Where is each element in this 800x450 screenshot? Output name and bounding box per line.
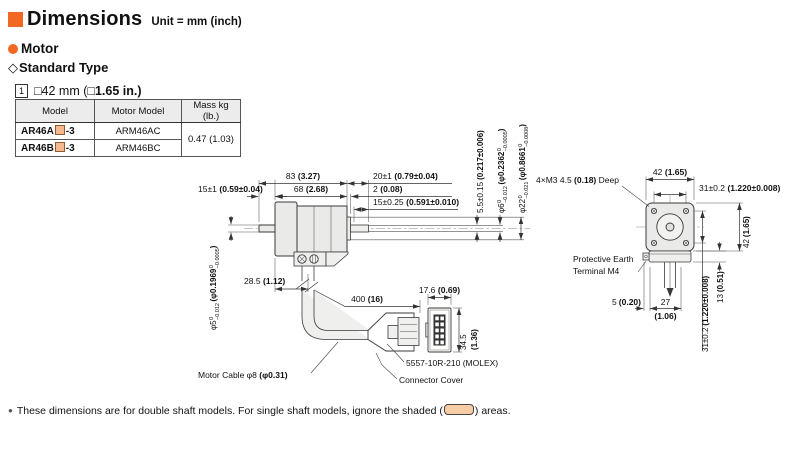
dim-connector-height-mm: 34.5 bbox=[459, 334, 468, 350]
diamond-icon: ◇ bbox=[8, 60, 18, 75]
connector-model-label: 5557-10R-210 (MOLEX) bbox=[406, 358, 498, 368]
motor-model-cell: ARM46AC bbox=[95, 123, 182, 140]
frame-size-heading: 1 □42 mm (□1.65 in.) bbox=[15, 84, 142, 98]
motor-side-view-drawing: 15±1(0.59±0.04) 83(3.27) 68(2.68) 20±1(0… bbox=[185, 88, 550, 398]
dim-pilot-length: 2(0.08) bbox=[373, 184, 403, 194]
cable-front-view bbox=[665, 262, 676, 297]
dim-hole-pitch-side: 31±0.2(1.220±0.008) bbox=[701, 275, 710, 352]
footnote-bullet-icon: ● bbox=[8, 406, 13, 415]
dim-hole-pitch-top: 31±0.2(1.220±0.008) bbox=[699, 183, 780, 193]
screw-icon bbox=[310, 255, 318, 263]
dim-front-shaft-dia: φ50−0.012(φ0.19690−0.0005) bbox=[209, 245, 221, 330]
dim-housing-height: 13(0.51) bbox=[716, 271, 725, 303]
motor-body bbox=[297, 206, 347, 252]
cable-grip bbox=[388, 326, 398, 339]
section-square-icon bbox=[8, 12, 23, 27]
motor-flange bbox=[275, 202, 297, 256]
model-variant-box bbox=[55, 125, 65, 135]
bullet-icon bbox=[8, 44, 18, 54]
tap-label: 4×M3 4.5 (0.18) Deep bbox=[536, 175, 619, 185]
dim-face-width: 42(1.65) bbox=[653, 167, 687, 177]
bracket-angle bbox=[326, 252, 348, 266]
cable-break-mark bbox=[296, 279, 309, 289]
col-header-model: Model bbox=[16, 100, 95, 123]
motor-front-view-drawing: 4×M3 4.5 (0.18) Deep 42(1.65) 31±0.2(1.2… bbox=[535, 145, 800, 390]
dim-connector-width: 17.6(0.69) bbox=[419, 285, 460, 295]
dim-cable-pitch-mm: 27 bbox=[661, 297, 671, 307]
front-shaft-shaded bbox=[259, 225, 275, 232]
dim-body-length: 68(2.68) bbox=[294, 184, 328, 194]
footnote: ●These dimensions are for double shaft m… bbox=[8, 404, 511, 417]
footnote-text-post: ) areas. bbox=[475, 405, 511, 417]
footnote-text-pre: These dimensions are for double shaft mo… bbox=[17, 405, 443, 417]
earth-terminal bbox=[643, 253, 649, 260]
standard-type-heading: ◇Standard Type bbox=[8, 60, 108, 76]
frame-size-label: □42 mm (□1.65 in.) bbox=[34, 84, 142, 98]
shaded-area-swatch bbox=[444, 404, 474, 415]
motor-section-label: Motor bbox=[21, 41, 59, 56]
connector-front-view bbox=[426, 308, 451, 352]
dim-face-height: 42(1.65) bbox=[742, 216, 751, 248]
dim-cable-offset: 28.5(1.12) bbox=[244, 276, 285, 286]
earth-terminal-label-line2: Terminal M4 bbox=[573, 266, 620, 276]
dim-total-length: 83(3.27) bbox=[286, 171, 320, 181]
dim-cable-pitch-inch: (1.06) bbox=[654, 311, 676, 321]
dim-pilot-height: 5.5±0.15(0.217±0.006) bbox=[476, 130, 485, 213]
connector-latch bbox=[426, 323, 428, 337]
model-cell: AR46A-3 bbox=[16, 123, 95, 140]
model-variant-box bbox=[55, 142, 65, 152]
motor-section-heading: Motor bbox=[8, 41, 59, 56]
mounting-hole-icon bbox=[651, 240, 656, 245]
connector-cover-label: Connector Cover bbox=[399, 375, 463, 385]
frame-ref-box: 1 bbox=[15, 84, 28, 98]
mounting-hole-icon bbox=[683, 208, 688, 213]
rear-pilot bbox=[347, 217, 351, 240]
mounting-hole-icon bbox=[683, 240, 688, 245]
connector-block bbox=[398, 318, 419, 346]
unit-note: Unit = mm (inch) bbox=[151, 16, 241, 28]
col-header-motor-model: Motor Model bbox=[95, 100, 182, 123]
model-cell: AR46B-3 bbox=[16, 140, 95, 157]
rear-shaft bbox=[351, 225, 369, 232]
motor-cable-label: Motor Cable φ8 (φ0.31) bbox=[198, 370, 288, 380]
motor-model-cell: ARM46BC bbox=[95, 140, 182, 157]
dimensions-page: Dimensions Unit = mm (inch) Motor ◇Stand… bbox=[0, 0, 800, 450]
page-header: Dimensions Unit = mm (inch) bbox=[8, 8, 242, 31]
bottom-housing bbox=[649, 251, 691, 262]
dim-flat-length: 15±0.25(0.591±0.010) bbox=[373, 197, 459, 207]
cable-break-mark bbox=[305, 282, 318, 292]
standard-type-label: Standard Type bbox=[19, 60, 108, 75]
mounting-hole-icon bbox=[651, 208, 656, 213]
shaft-circle bbox=[666, 223, 674, 231]
screw-icon bbox=[298, 255, 306, 263]
earth-terminal-label-line1: Protective Earth bbox=[573, 254, 634, 264]
dim-pilot-dia: φ220−0.021(φ0.86610−0.0008) bbox=[518, 124, 530, 213]
dim-rear-shaft-length: 20±1(0.79±0.04) bbox=[373, 171, 438, 181]
page-title: Dimensions bbox=[27, 8, 142, 31]
dim-terminal-offset: 5(0.20) bbox=[612, 297, 641, 307]
dim-cable-length: 400(16) bbox=[351, 294, 383, 304]
dim-front-shaft-length: 15±1(0.59±0.04) bbox=[198, 184, 263, 194]
dim-rear-shaft-dia: φ60−0.012(φ0.23620−0.0005) bbox=[497, 128, 509, 213]
dim-connector-height-inch: (1.36) bbox=[470, 329, 479, 350]
